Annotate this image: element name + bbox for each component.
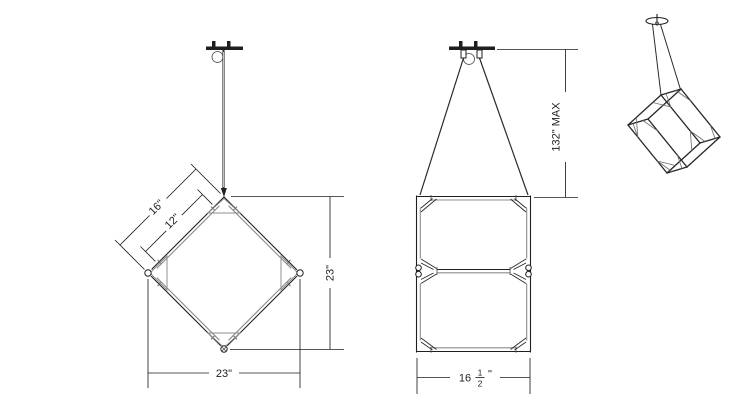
- dimension-side-width: 16 1 2 ": [417, 358, 530, 394]
- canopy-mount-tab: [227, 41, 231, 47]
- stem-arrow-tip: [221, 188, 227, 197]
- frame-edge-inner: [157, 278, 219, 340]
- front-view: 16" 12" 23" 23": [115, 41, 344, 388]
- canopy-mount-tab: [212, 41, 216, 47]
- frame-body: [416, 195, 532, 353]
- dim-label-side-width-whole: 16: [459, 373, 471, 385]
- dim-label-side-width-unit: ": [488, 369, 492, 381]
- canopy-mount-tab: [474, 41, 478, 47]
- canopy-plate: [449, 47, 495, 51]
- tube-joints: [158, 207, 291, 340]
- cable: [420, 58, 464, 195]
- mid-connector: [416, 271, 422, 277]
- corner-connector: [297, 270, 303, 276]
- frame-edge-inner: [229, 278, 291, 340]
- frame-edge-inner: [157, 206, 219, 268]
- cable: [653, 25, 662, 96]
- hanging-stem: [221, 50, 227, 197]
- safety-loop: [212, 52, 223, 63]
- mid-connector: [526, 271, 532, 277]
- corner-connector: [145, 270, 151, 276]
- cable: [661, 25, 681, 90]
- ceiling-canopy: [449, 41, 495, 65]
- side-view: 132" MAX 16 1 2 ": [416, 41, 578, 394]
- ceiling-canopy: [646, 15, 668, 26]
- suspension-cables: [420, 58, 528, 195]
- dim-label-height: 23": [325, 265, 337, 281]
- cable-gripper: [477, 50, 482, 58]
- dim-label-edge-inner: 12": [163, 212, 183, 232]
- dim-label-width: 23": [216, 368, 232, 380]
- canopy-mount-tab: [459, 41, 463, 47]
- cable: [480, 58, 529, 195]
- mid-connector: [526, 265, 532, 271]
- dim-label-side-width-num: 1: [478, 368, 483, 378]
- suspension-cables: [653, 25, 681, 96]
- cube-wireframe: [628, 89, 720, 173]
- perspective-view: [628, 15, 720, 174]
- cable-gripper: [461, 50, 466, 58]
- corner-gusset-top: [208, 199, 240, 214]
- dim-label-side-width-den: 2: [478, 379, 483, 389]
- dim-label-drop: 132" MAX: [551, 102, 563, 152]
- dimension-drop: 132" MAX: [497, 50, 578, 198]
- technical-drawing-page: 16" 12" 23" 23": [0, 0, 750, 420]
- dim-label-edge-outer: 16": [147, 198, 167, 218]
- canopy-plate: [206, 47, 243, 51]
- mid-connector: [416, 265, 422, 271]
- dimension-edge-inner: 12": [141, 190, 213, 262]
- frame-edge-inner: [229, 206, 291, 268]
- pendant-fixture-drawing: 16" 12" 23" 23": [0, 0, 750, 420]
- cube-corner-gussets: [633, 91, 715, 172]
